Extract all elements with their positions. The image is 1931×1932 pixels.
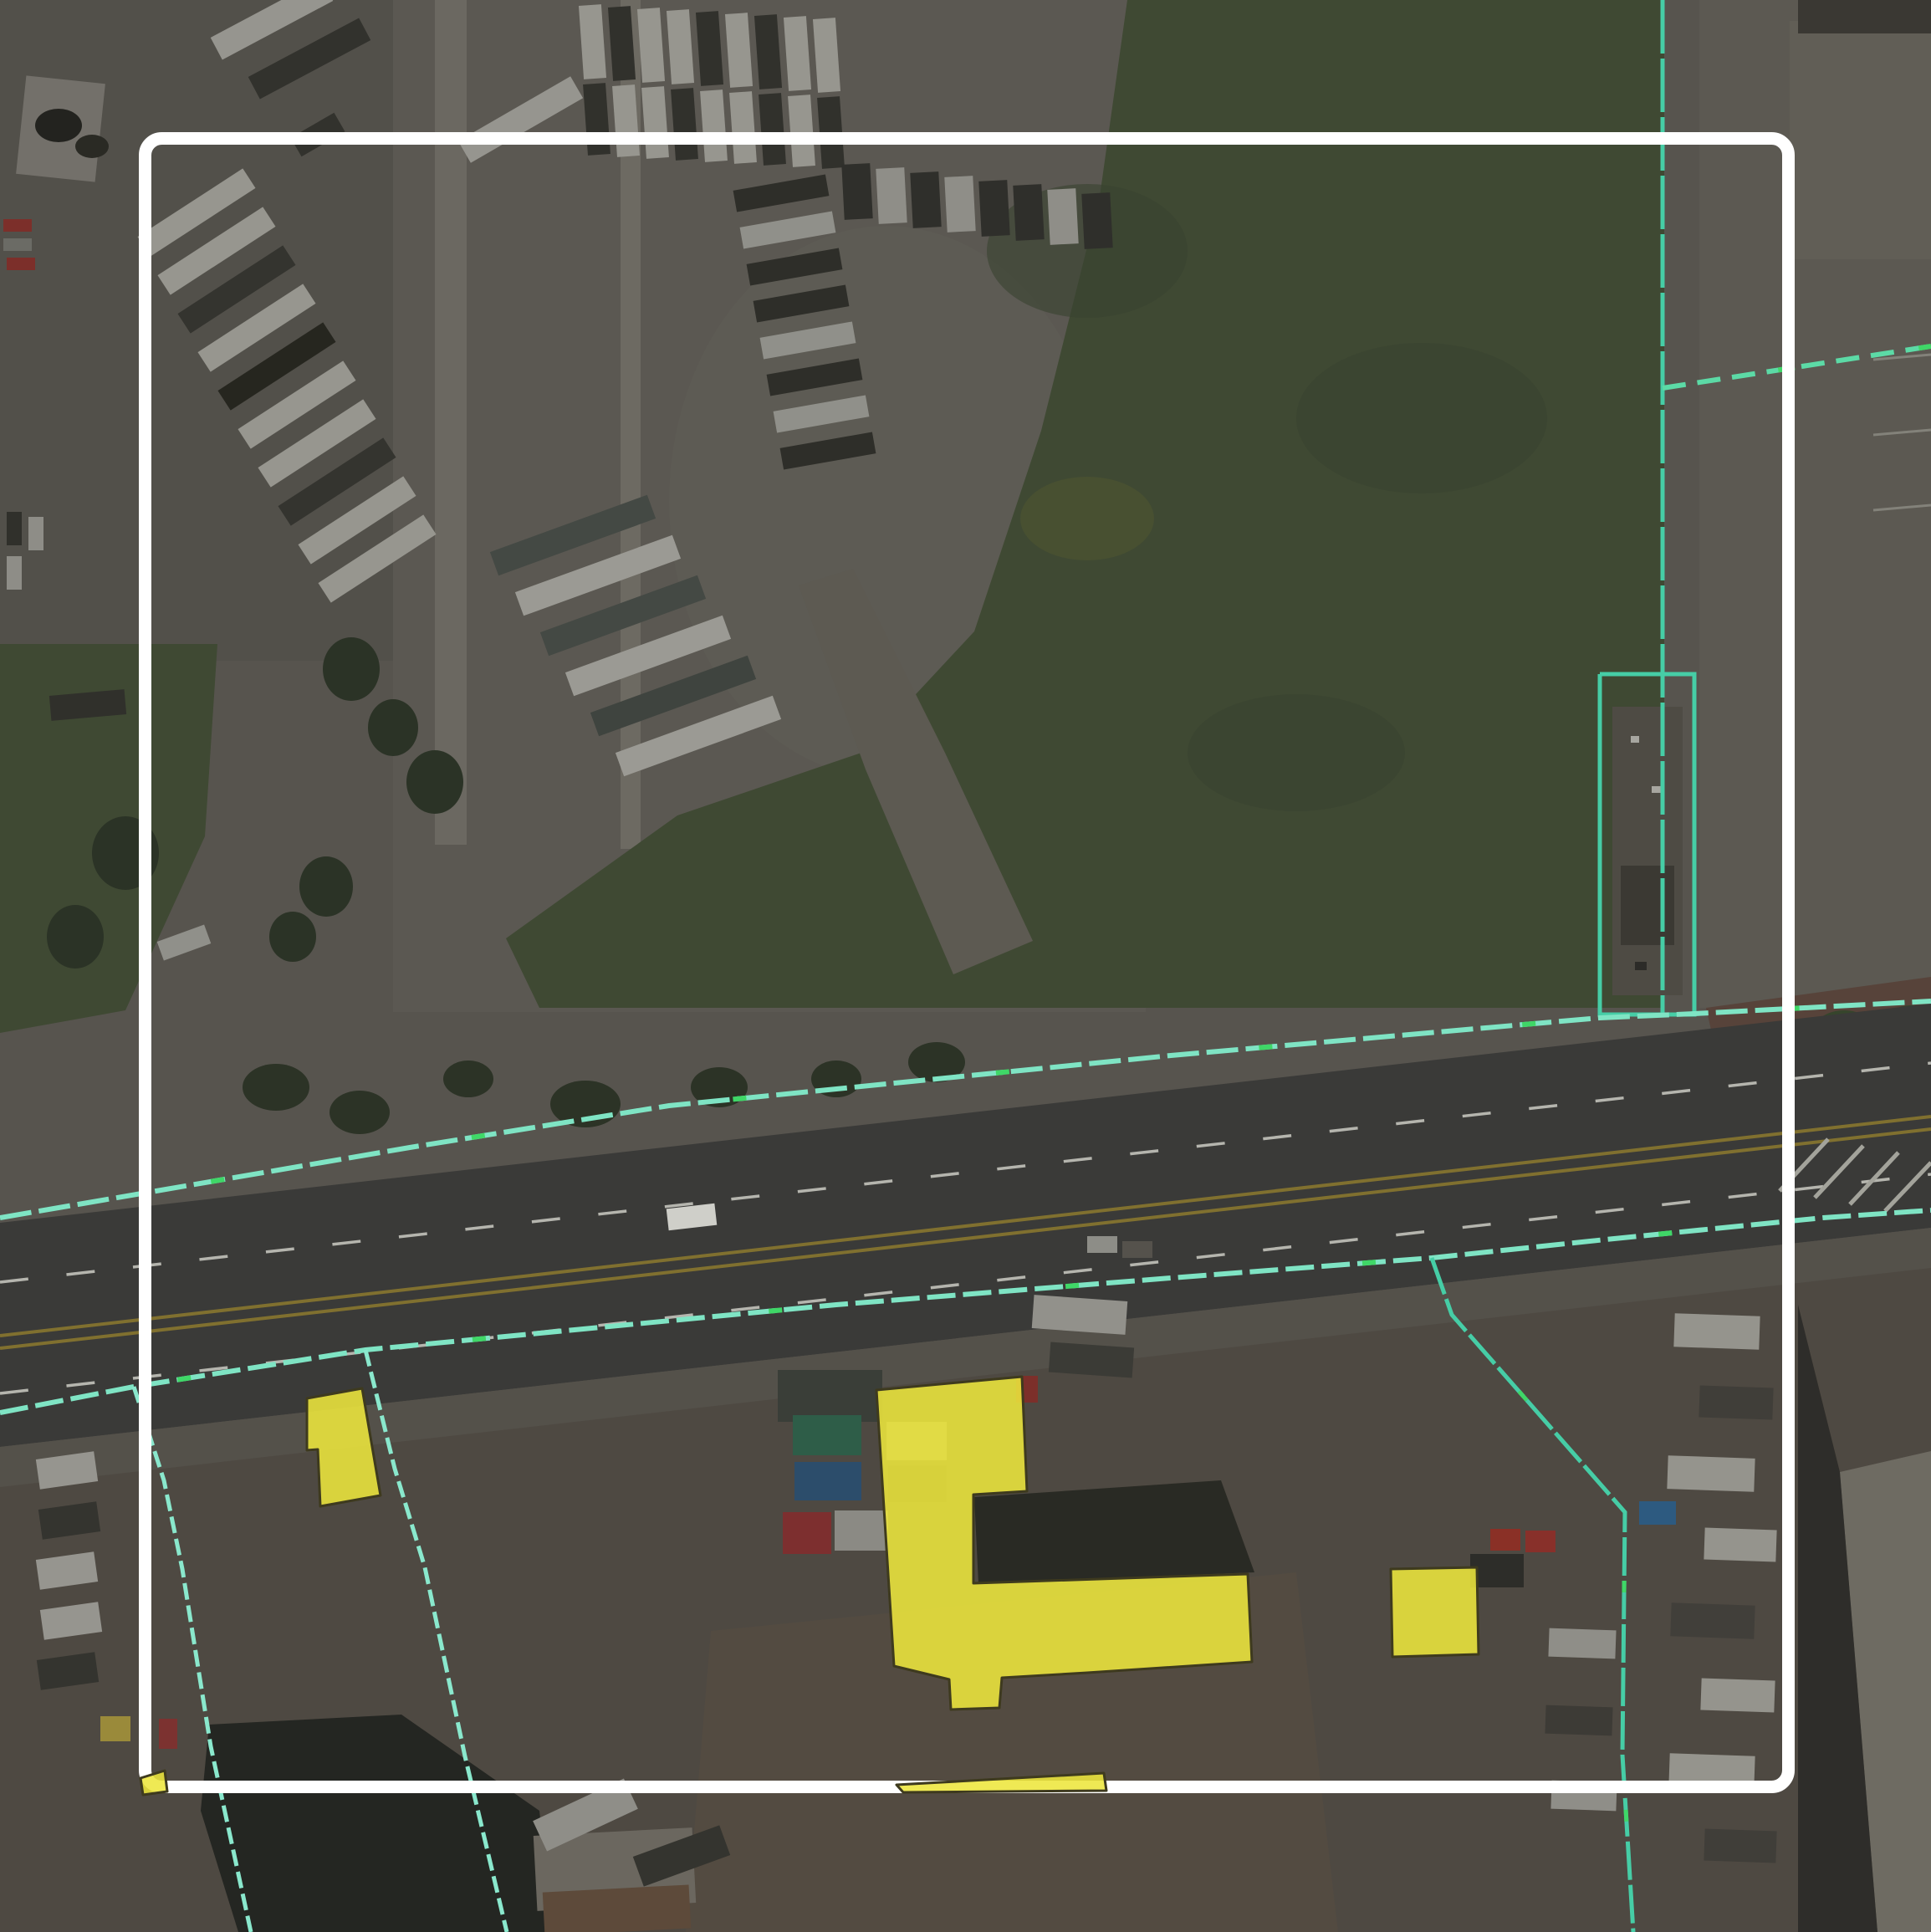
shed-detail: [1635, 962, 1647, 970]
grass-patch: [1020, 477, 1154, 560]
trailer: [876, 167, 907, 224]
car: [1122, 1241, 1152, 1258]
trailer: [1032, 1295, 1128, 1335]
tree: [329, 1091, 390, 1134]
shed-detail: [1652, 786, 1662, 793]
trailer-row-top: [579, 4, 840, 93]
shed-detail: [1631, 736, 1639, 743]
truck-cab-red: [1490, 1529, 1520, 1551]
tree: [323, 637, 380, 701]
trailer: [944, 176, 975, 233]
trailer: [910, 171, 941, 228]
tree: [243, 1064, 309, 1111]
car: [1087, 1236, 1117, 1253]
trailer: [1047, 188, 1078, 245]
trailer: [1700, 1678, 1775, 1712]
trailer: [1673, 1313, 1760, 1350]
truck-cab-red: [1525, 1531, 1556, 1552]
loader-yellow: [100, 1716, 130, 1741]
trailer: [1013, 184, 1044, 241]
trailer: [1699, 1385, 1773, 1419]
car: [7, 258, 35, 270]
concrete-strip: [435, 0, 467, 845]
trailer: [1548, 1628, 1616, 1659]
tree: [368, 699, 418, 756]
tree: [443, 1061, 493, 1097]
tree: [269, 912, 316, 962]
trailer: [1670, 1602, 1755, 1638]
trailer: [841, 163, 872, 220]
car: [7, 512, 22, 545]
industrial-clutter: [1798, 0, 1931, 33]
trailer: [1704, 1829, 1776, 1863]
equipment-pile: [75, 135, 109, 158]
trailer: [1049, 1342, 1134, 1378]
truck-blue: [1639, 1501, 1676, 1525]
container-blue: [794, 1462, 861, 1500]
trailer: [1704, 1528, 1776, 1562]
vehicle-red: [159, 1719, 177, 1749]
trailer: [1667, 1455, 1755, 1492]
shed-roof-detail: [1621, 866, 1674, 945]
trailer: [978, 180, 1009, 237]
roof-bottom-center: [543, 1884, 691, 1932]
container-green: [793, 1415, 861, 1455]
car: [3, 219, 32, 232]
trailer: [1081, 192, 1112, 249]
car: [7, 556, 22, 590]
building-roof-northeast: [1790, 21, 1931, 259]
equipment-pile: [35, 109, 82, 142]
container-red: [783, 1512, 831, 1554]
annotation-stage: [0, 0, 1931, 1932]
junk-pile: [974, 1480, 1254, 1583]
tree: [406, 750, 463, 814]
trailer-row-top: [583, 83, 845, 169]
aerial-annotation-viewport: [0, 0, 1931, 1932]
grass-patch: [1296, 343, 1547, 493]
trailer: [1545, 1705, 1612, 1736]
tree: [299, 856, 353, 917]
building-highlight-east[interactable]: [1391, 1567, 1479, 1657]
container: [778, 1370, 882, 1422]
car: [3, 238, 32, 251]
grass-patch: [1188, 694, 1405, 811]
tree: [47, 905, 104, 969]
container-white: [835, 1510, 888, 1551]
car: [28, 517, 43, 550]
shed-in-enclosure: [1612, 707, 1683, 995]
